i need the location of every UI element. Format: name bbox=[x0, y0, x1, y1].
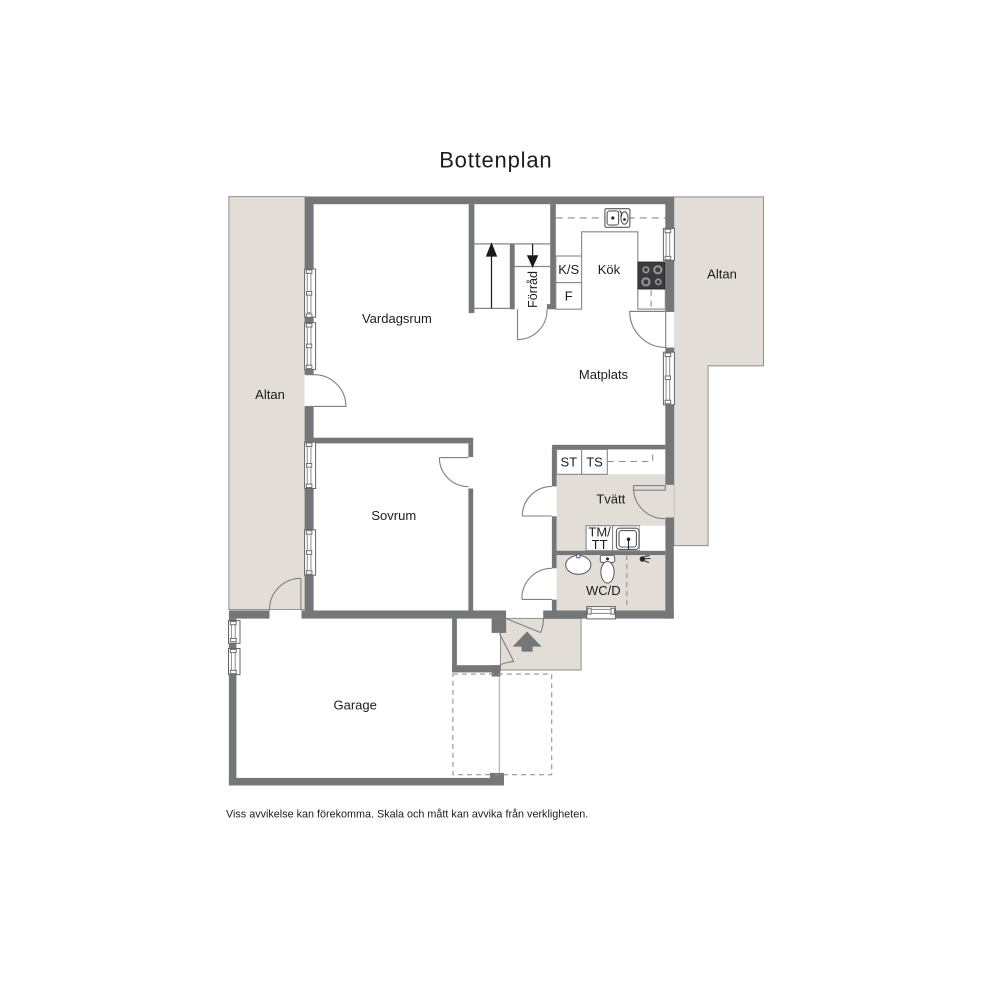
svg-text:Sovrum: Sovrum bbox=[371, 508, 416, 523]
svg-text:F: F bbox=[565, 289, 573, 304]
svg-text:Förråd: Förråd bbox=[526, 271, 540, 308]
svg-text:Vardagsrum: Vardagsrum bbox=[362, 311, 432, 326]
svg-text:Matplats: Matplats bbox=[579, 367, 629, 382]
svg-text:Garage: Garage bbox=[334, 698, 377, 713]
svg-text:TS: TS bbox=[586, 454, 603, 469]
svg-text:Altan: Altan bbox=[707, 267, 737, 282]
svg-text:ST: ST bbox=[560, 454, 577, 469]
svg-text:Kök: Kök bbox=[598, 262, 621, 277]
svg-text:Altan: Altan bbox=[255, 387, 285, 402]
svg-text:Bottenplan: Bottenplan bbox=[439, 148, 552, 173]
svg-text:Tvätt: Tvätt bbox=[596, 492, 625, 507]
svg-text:Viss avvikelse kan förekomma.: Viss avvikelse kan förekomma. Skala och … bbox=[226, 809, 588, 821]
svg-text:K/S: K/S bbox=[558, 262, 579, 277]
svg-text:WC/D: WC/D bbox=[586, 583, 621, 598]
svg-text:TT: TT bbox=[592, 537, 608, 552]
